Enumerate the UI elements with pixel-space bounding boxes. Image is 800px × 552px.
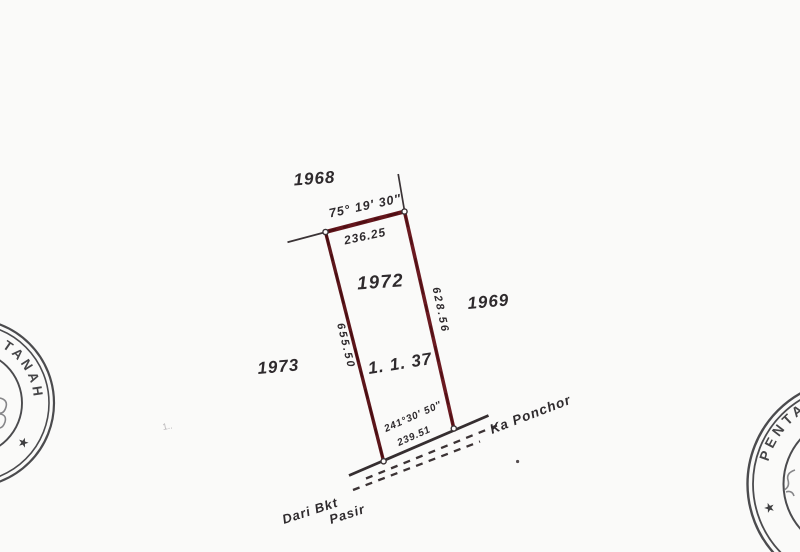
svg-text:1968: 1968	[293, 168, 336, 190]
svg-text:1969: 1969	[467, 290, 510, 313]
svg-text:1972: 1972	[356, 269, 405, 293]
svg-text:1..: 1..	[162, 420, 174, 432]
svg-text:1973: 1973	[257, 355, 300, 378]
